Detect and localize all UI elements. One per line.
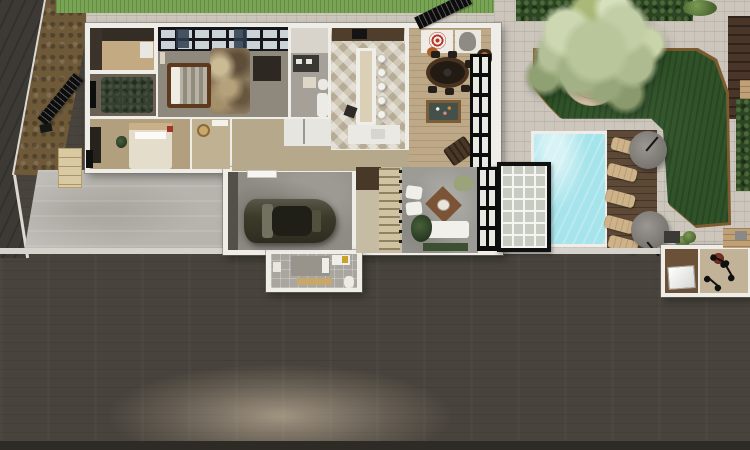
garage-door-opener xyxy=(247,170,277,178)
game-room-window-wall xyxy=(470,54,491,170)
garage-wall-shadow xyxy=(228,172,238,250)
bedroom2-pillows xyxy=(135,132,166,139)
kitchen-stove[interactable] xyxy=(352,29,367,39)
yard-bench[interactable] xyxy=(664,231,680,243)
poker-chair-2[interactable] xyxy=(448,51,457,58)
closet-wardrobe-side[interactable] xyxy=(90,28,102,70)
poker-chair-5[interactable] xyxy=(445,88,454,95)
storage-white-panel[interactable] xyxy=(667,265,696,290)
kitchen-counter-north[interactable] xyxy=(332,28,404,41)
coffee-table[interactable] xyxy=(437,199,450,211)
entry-closet-door[interactable] xyxy=(212,120,228,126)
master-wall-art xyxy=(160,52,165,64)
bar-stool-5[interactable] xyxy=(377,110,386,119)
street-bottom-edge xyxy=(0,441,750,450)
interior-staircase[interactable] xyxy=(379,168,400,250)
driveway xyxy=(24,170,224,252)
living-glass-wall xyxy=(477,167,499,251)
closet-dresser[interactable] xyxy=(140,42,153,58)
hand-chair[interactable] xyxy=(459,32,476,51)
bar-stool-4[interactable] xyxy=(377,96,386,105)
media-tv[interactable] xyxy=(90,81,96,108)
kitchen-sink xyxy=(371,129,385,139)
floorplan-render-viewport: Top-down 3D rendering of a modern single… xyxy=(0,0,750,450)
bathroom1-sink-2 xyxy=(306,59,312,64)
master-rock-garden xyxy=(210,48,250,114)
planter-hedge xyxy=(423,243,468,251)
poker-chair-4[interactable] xyxy=(428,86,437,93)
bathroom1-toilet[interactable] xyxy=(318,79,328,90)
stair-landing-dark xyxy=(356,167,381,190)
hedge-right-strip xyxy=(736,99,750,191)
bathroom1-sink-1 xyxy=(296,59,302,64)
bean-bag[interactable] xyxy=(454,175,473,191)
bathroom1-upper xyxy=(291,28,328,53)
poker-chair-6[interactable] xyxy=(461,85,470,92)
bush-top-corner[interactable] xyxy=(683,0,717,16)
outdoor-cabinet[interactable] xyxy=(58,148,82,188)
armchair-2[interactable] xyxy=(405,201,422,216)
master-bed-pillows xyxy=(171,67,180,104)
bathroom2-floor xyxy=(284,119,331,146)
sofa-white[interactable] xyxy=(427,221,469,238)
bedroom2-headboard xyxy=(129,123,172,130)
large-tree[interactable] xyxy=(522,0,670,122)
kitchen-island-top xyxy=(360,51,372,122)
billiard-table[interactable] xyxy=(426,100,461,123)
bathroom1-tub[interactable] xyxy=(317,93,328,117)
poker-table[interactable] xyxy=(426,57,469,88)
skylight-dark-pane-2 xyxy=(234,29,247,48)
bathroom1-bathmat xyxy=(303,77,316,88)
entry-round-mirror[interactable] xyxy=(197,124,210,137)
guest-bench[interactable] xyxy=(297,278,332,285)
sports-car-rear-window xyxy=(312,210,321,232)
poker-chair-1[interactable] xyxy=(431,51,440,58)
bar-stool-3[interactable] xyxy=(377,82,386,91)
guest-wall-item xyxy=(342,256,348,263)
bedroom2-window xyxy=(86,150,93,168)
guest-toilet[interactable] xyxy=(344,276,354,288)
guest-bed-pillow xyxy=(322,258,329,273)
bar-stool-1[interactable] xyxy=(377,54,386,63)
skylight-dark-pane-1 xyxy=(176,29,189,48)
bar-stool-2[interactable] xyxy=(377,68,386,77)
side-gray-box xyxy=(735,231,747,240)
bathroom2-shower-glass xyxy=(303,119,305,144)
bedroom2-nightstand-item[interactable] xyxy=(167,126,173,132)
armchair-1[interactable] xyxy=(405,185,423,200)
media-daybed[interactable] xyxy=(101,77,153,113)
sunroom-glass-roof xyxy=(501,166,547,248)
master-desk[interactable] xyxy=(253,56,281,81)
sports-car-cabin xyxy=(272,206,312,236)
yard-potted-plant[interactable] xyxy=(683,231,696,243)
pergola-steps xyxy=(740,80,750,101)
guest-sink xyxy=(273,262,281,272)
street-light-glow xyxy=(110,365,450,450)
